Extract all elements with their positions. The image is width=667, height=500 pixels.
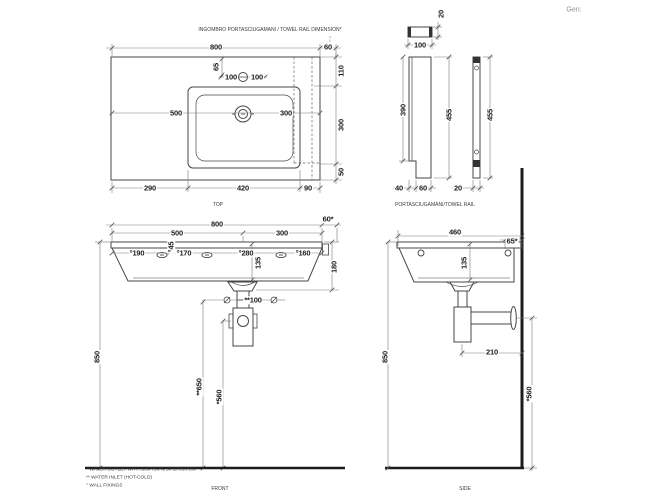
dim-fix-3: °280 <box>238 249 255 257</box>
fixing-hole-side-front <box>418 250 424 256</box>
gen-label: Gen: <box>566 7 581 14</box>
dim-fix-4: °160 <box>295 249 312 257</box>
dim-basin-left: 500 <box>169 109 183 117</box>
dim-top-depth-bottom: 50 <box>337 167 345 177</box>
dim-top-rail-side: 60 <box>323 43 333 51</box>
dim-front-rim-height: 850 <box>93 350 101 364</box>
dim-front-width: 800 <box>210 220 224 228</box>
dim-top-width: 800 <box>209 43 223 51</box>
top-view-dimension-lines <box>106 36 342 193</box>
dim-front-basin-height: 135 <box>254 256 262 270</box>
drain-and-trap-front <box>228 282 257 346</box>
dim-side-rail-gap: 65* <box>506 237 519 245</box>
dim-inlet-height: **650 <box>195 377 203 396</box>
front-view-drawing <box>85 223 345 471</box>
dim-side-rim-height: 850 <box>381 350 389 364</box>
footnote-wall-fixings: ° WALL FIXINGS <box>86 485 122 490</box>
dim-top-basin-depth: 300 <box>337 118 345 132</box>
towel-rail-detail-drawing <box>393 22 493 192</box>
front-dimension-lines <box>95 225 341 468</box>
dim-rail-height-side: 455 <box>486 108 494 122</box>
dim-top-depth-top: 110 <box>337 64 345 78</box>
dim-rail-height-front: 455 <box>445 108 453 122</box>
dim-left-margin: 290 <box>143 184 157 192</box>
dim-trap-offset: 210 <box>485 348 499 356</box>
dim-faucet-right: 100 <box>250 73 264 81</box>
dim-basin-width: 420 <box>236 184 250 192</box>
towel-rail-label: PORTASCIUGAMANI/TOWEL RAIL <box>394 202 476 208</box>
technical-drawing-sheet: Gen: INGOMBRO PORTASCIUGAMANI / TOWEL RA… <box>0 0 667 500</box>
dim-basin-right: 300 <box>279 109 293 117</box>
front-ticks <box>98 223 340 471</box>
front-view-label: FRONT <box>210 486 229 492</box>
dim-front-height: 180 <box>330 260 338 274</box>
dim-fix-1: °190 <box>129 249 146 257</box>
dim-rail-bar-width: 100 <box>413 41 427 49</box>
drain-and-trap-side <box>450 282 516 342</box>
dim-front-drain-right: 300 <box>275 229 289 237</box>
drawing-linework <box>0 0 667 500</box>
dim-front-outlet-height: *560 <box>215 389 223 406</box>
dim-front-drain-left: 500 <box>170 229 184 237</box>
fixing-hole-side-back <box>505 250 511 256</box>
footnote-water-outlet: * WATER OUTLET WITH SISP/SIFN/SIFBR/SIFC… <box>86 469 196 474</box>
top-view-ticks <box>110 46 339 191</box>
dim-faucet-left: 100 <box>224 73 238 81</box>
side-view-drawing <box>385 168 537 471</box>
dim-faucet-offset: 65 <box>212 62 220 72</box>
dim-front-rail-overhang: 60* <box>322 215 335 223</box>
dim-rail-foot-width: 60 <box>418 184 428 192</box>
dim-inlet-span: **100 <box>243 296 262 304</box>
dim-side-outlet-height: *560 <box>525 386 533 403</box>
dim-side-depth: 460 <box>448 228 462 236</box>
side-view-label: SIDE <box>458 486 472 492</box>
dim-rail-bar-thickness: 20 <box>437 9 445 19</box>
dim-rail-foot-offset: 40 <box>394 184 404 192</box>
dim-rail-profile-thickness: 20 <box>453 184 463 192</box>
rail-end-front <box>323 244 329 255</box>
drain-symbol <box>232 106 254 122</box>
top-view-drawing <box>106 36 342 193</box>
dim-fix-2: °170 <box>176 249 193 257</box>
dim-side-basin-height: 135 <box>460 256 468 270</box>
basin-inner-outline <box>196 95 293 161</box>
dim-rail-inner-height: 390 <box>399 103 407 117</box>
dim-right-margin: 90 <box>303 184 313 192</box>
dim-fix-depth: °45 <box>167 241 175 254</box>
footnote-water-inlet: ** WATER INLET (HOT-COLD) <box>86 477 152 482</box>
top-view-note: INGOMBRO PORTASCIUGAMANI / TOWEL RAIL DI… <box>197 27 342 33</box>
basin-outline <box>188 87 300 168</box>
towel-rail-hidden-outline <box>294 57 320 180</box>
top-view-label: TOP <box>212 202 224 208</box>
